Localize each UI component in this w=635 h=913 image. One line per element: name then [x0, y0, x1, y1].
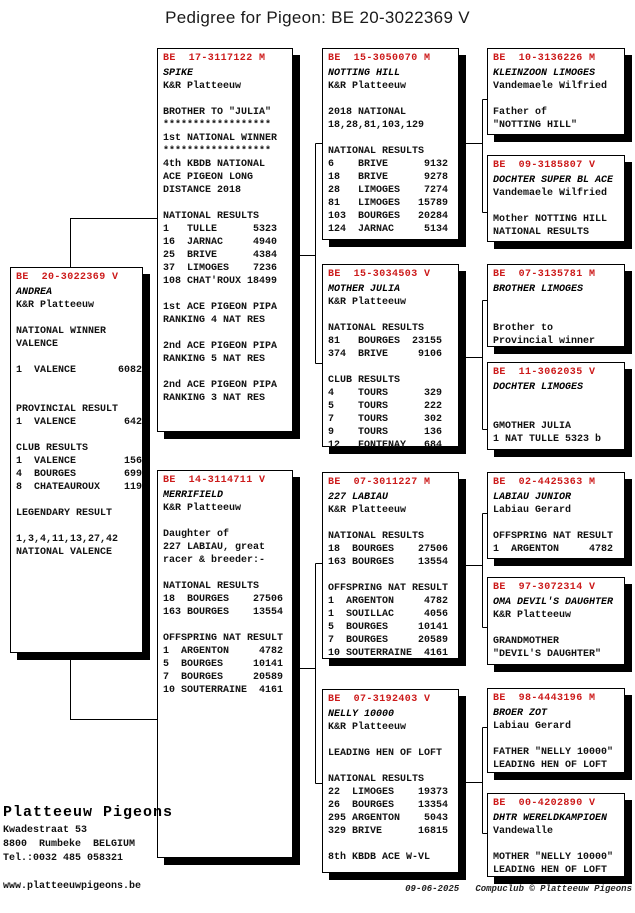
box-details: K&R Platteeuw BROTHER TO "JULIA" *******…	[158, 80, 292, 405]
pigeon-name: DHTR WERELDKAMPIOEN	[488, 812, 624, 825]
pigeon-name: MERRIFIELD	[158, 489, 292, 502]
ring-number: BE 15-3050070 M	[323, 49, 458, 67]
box-details: K&R Platteeuw NATIONAL WINNER VALENCE 1 …	[11, 299, 142, 559]
pigeon-name: ANDREA	[11, 286, 142, 299]
pedigree-page: Pedigree for Pigeon: BE 20-3022369 V BE …	[0, 0, 635, 913]
pigeon-name: SPIKE	[158, 67, 292, 80]
box-details: Vandemaele Wilfried Mother NOTTING HILL …	[488, 187, 624, 239]
pedigree-box-dam-dam-sire: BE 98-4443196 M BROER ZOT Labiau Gerard …	[487, 688, 625, 773]
box-details: Labiau Gerard FATHER "NELLY 10000" LEADI…	[488, 720, 624, 772]
pedigree-box-sire-dam-dam: BE 11-3062035 V DOCHTER LIMOGES GMOTHER …	[487, 362, 625, 450]
ring-number: BE 98-4443196 M	[488, 689, 624, 707]
box-details: K&R Platteeuw LEADING HEN OF LOFT NATION…	[323, 721, 458, 864]
ring-number: BE 02-4425363 M	[488, 473, 624, 491]
pedigree-box-sire-sire: BE 15-3050070 M NOTTING HILL K&R Plattee…	[322, 48, 459, 240]
pigeon-name: MOTHER JULIA	[323, 283, 458, 296]
pigeon-name: NELLY 10000	[323, 708, 458, 721]
loft-address: Kwadestraat 53 8800 Rumbeke BELGIUM Tel.…	[3, 824, 173, 894]
box-details: GMOTHER JULIA 1 NAT TULLE 5323 b	[488, 394, 624, 446]
pedigree-box-dam-sire: BE 07-3011227 M 227 LABIAU K&R Platteeuw…	[322, 472, 459, 659]
pedigree-box-sire-sire-sire: BE 10-3136226 M KLEINZOON LIMOGES Vandem…	[487, 48, 625, 135]
loft-name: Platteeuw Pigeons	[3, 802, 173, 824]
pedigree-box-dam-sire-dam: BE 97-3072314 V OMA DEVIL'S DAUGHTER K&R…	[487, 577, 625, 665]
ring-number: BE 17-3117122 M	[158, 49, 292, 67]
ring-number: BE 09-3185807 V	[488, 156, 624, 174]
pigeon-name: BROTHER LIMOGES	[488, 283, 624, 296]
pedigree-box-dam: BE 14-3114711 V MERRIFIELD K&R Platteeuw…	[157, 470, 293, 858]
pedigree-box-dam-dam: BE 07-3192403 V NELLY 10000 K&R Platteeu…	[322, 689, 459, 873]
pigeon-name: OMA DEVIL'S DAUGHTER	[488, 596, 624, 609]
ring-number: BE 14-3114711 V	[158, 471, 292, 489]
ring-number: BE 20-3022369 V	[11, 268, 142, 286]
box-details: K&R Platteeuw Daughter of 227 LABIAU, gr…	[158, 502, 292, 697]
footer-spacer	[459, 884, 475, 894]
pigeon-name: LABIAU JUNIOR	[488, 491, 624, 504]
ring-number: BE 00-4202890 V	[488, 794, 624, 812]
pigeon-name: BROER ZOT	[488, 707, 624, 720]
ring-number: BE 15-3034503 V	[323, 265, 458, 283]
footer-credit-text: Compuclub © Platteeuw Pigeons	[475, 884, 632, 894]
box-details: K&R Platteeuw NATIONAL RESULTS 18 BOURGE…	[323, 504, 458, 660]
pedigree-box-sire: BE 17-3117122 M SPIKE K&R Platteeuw BROT…	[157, 48, 293, 432]
ring-number: BE 07-3135781 M	[488, 265, 624, 283]
ring-number: BE 07-3011227 M	[323, 473, 458, 491]
box-details: Vandemaele Wilfried Father of "NOTTING H…	[488, 80, 624, 132]
ring-number: BE 11-3062035 V	[488, 363, 624, 381]
pigeon-name: KLEINZOON LIMOGES	[488, 67, 624, 80]
box-details: K&R Platteeuw GRANDMOTHER "DEVIL'S DAUGH…	[488, 609, 624, 661]
box-details: Labiau Gerard OFFSPRING NAT RESULT 1 ARG…	[488, 504, 624, 556]
footer-credit: 09-06-2025 Compuclub © Platteeuw Pigeons	[405, 884, 632, 894]
pigeon-name: 227 LABIAU	[323, 491, 458, 504]
pedigree-box-sire-dam: BE 15-3034503 V MOTHER JULIA K&R Plattee…	[322, 264, 459, 447]
loft-info: Platteeuw Pigeons Kwadestraat 53 8800 Ru…	[3, 802, 173, 894]
pedigree-box-dam-dam-dam: BE 00-4202890 V DHTR WERELDKAMPIOEN Vand…	[487, 793, 625, 877]
pedigree-box-subject: BE 20-3022369 V ANDREA K&R Platteeuw NAT…	[10, 267, 143, 653]
pedigree-box-dam-sire-sire: BE 02-4425363 M LABIAU JUNIOR Labiau Ger…	[487, 472, 625, 559]
box-details: K&R Platteeuw 2018 NATIONAL 18,28,81,103…	[323, 80, 458, 236]
pedigree-box-sire-sire-dam: BE 09-3185807 V DOCHTER SUPER BL ACE Van…	[487, 155, 625, 242]
box-details: Brother to Provincial winner	[488, 296, 624, 348]
ring-number: BE 07-3192403 V	[323, 690, 458, 708]
ring-number: BE 97-3072314 V	[488, 578, 624, 596]
box-details: K&R Platteeuw NATIONAL RESULTS 81 BOURGE…	[323, 296, 458, 452]
pigeon-name: DOCHTER LIMOGES	[488, 381, 624, 394]
footer-date: 09-06-2025	[405, 884, 459, 894]
ring-number: BE 10-3136226 M	[488, 49, 624, 67]
pedigree-box-sire-dam-sire: BE 07-3135781 M BROTHER LIMOGES Brother …	[487, 264, 625, 347]
box-details: Vandewalle MOTHER "NELLY 10000" LEADING …	[488, 825, 624, 877]
pigeon-name: DOCHTER SUPER BL ACE	[488, 174, 624, 187]
pigeon-name: NOTTING HILL	[323, 67, 458, 80]
